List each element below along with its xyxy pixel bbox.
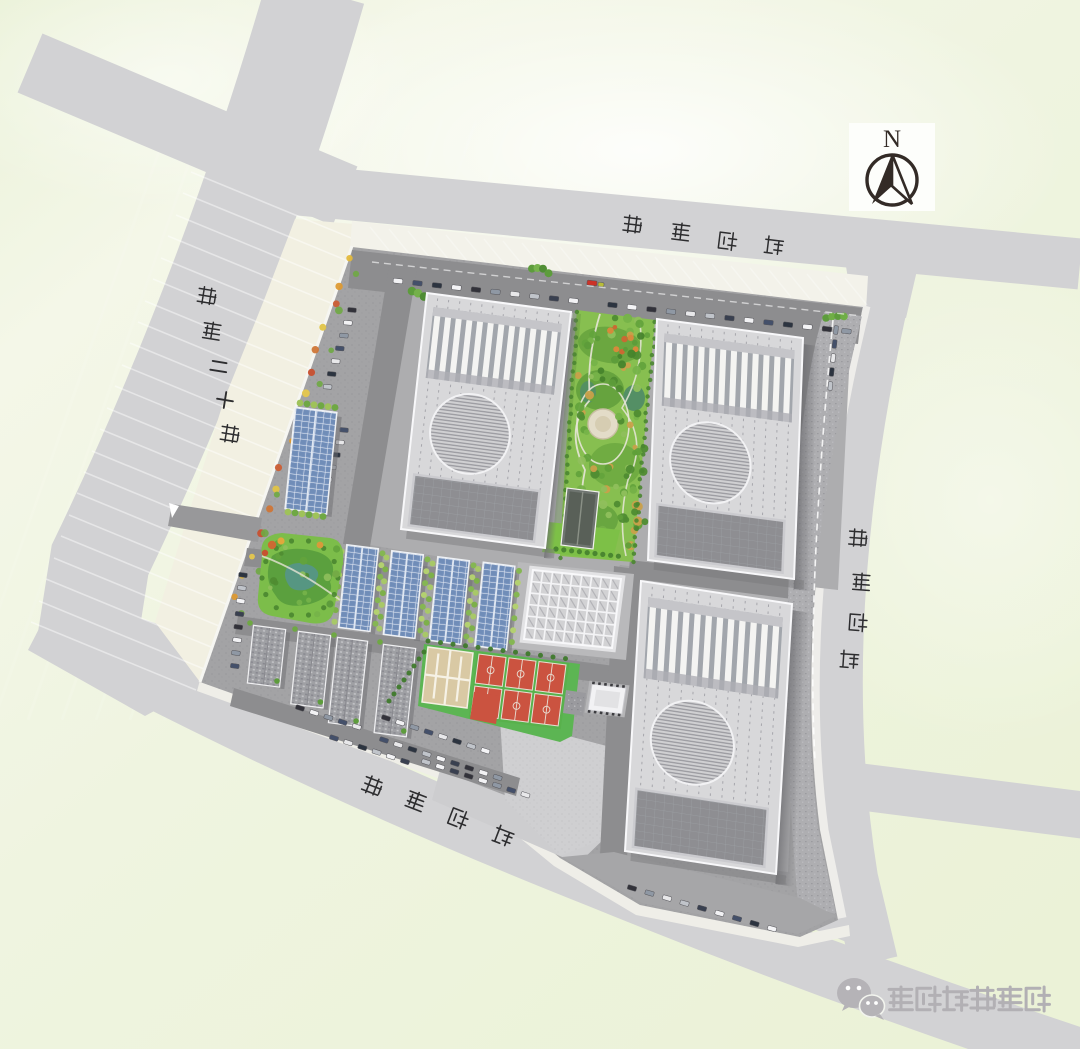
svg-text:N: N: [883, 126, 901, 153]
